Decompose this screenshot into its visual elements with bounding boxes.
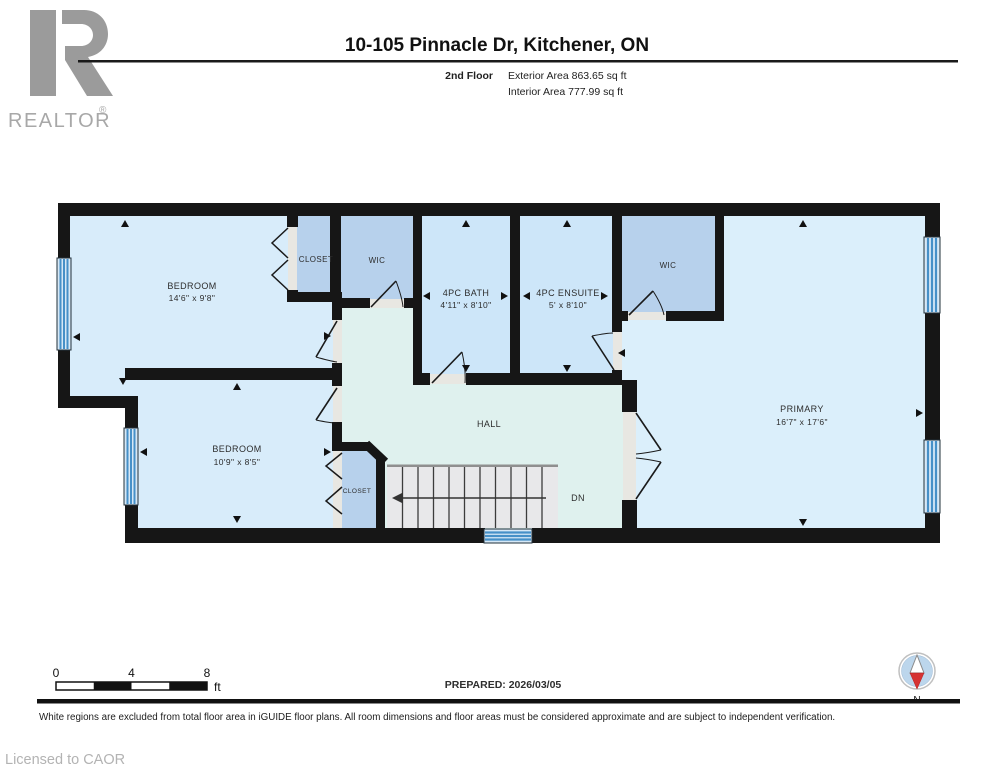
hall-label: HALL bbox=[477, 419, 501, 429]
floorplan-page: REALTOR ® 10-105 Pinnacle Dr, Kitchener,… bbox=[0, 0, 995, 768]
logo-brand-text: REALTOR bbox=[8, 110, 111, 132]
bedroom-2-dims: 10'9" x 8'5" bbox=[214, 457, 261, 467]
bedroom-1-label: BEDROOM bbox=[167, 281, 216, 291]
floor-plan: BEDROOM 14'6" x 9'8" CLOSET WIC 4PC BATH… bbox=[57, 203, 940, 543]
bedroom-2-label: BEDROOM bbox=[212, 444, 261, 454]
disclaimer-text: White regions are excluded from total fl… bbox=[39, 712, 835, 723]
prepared-date: PREPARED: 2026/03/05 bbox=[445, 679, 562, 691]
logo-r-bowl-leg bbox=[62, 10, 113, 96]
compass-icon: N bbox=[899, 653, 935, 706]
realtor-logo: REALTOR ® bbox=[8, 10, 113, 132]
scale-bar: 0 4 8 ft bbox=[53, 666, 222, 694]
header-divider-line bbox=[78, 60, 958, 63]
window bbox=[484, 529, 532, 543]
logo-r-stem bbox=[30, 10, 56, 96]
primary-dims: 16'7" x 17'6" bbox=[776, 417, 828, 427]
window bbox=[924, 237, 940, 313]
scale-unit-label: ft bbox=[214, 680, 221, 694]
floor-label: 2nd Floor bbox=[445, 70, 493, 82]
interior-area-text: Interior Area 777.99 sq ft bbox=[508, 86, 623, 98]
footer-divider-line bbox=[37, 699, 960, 704]
bath-label: 4PC BATH bbox=[443, 288, 490, 298]
bedroom-1-dims: 14'6" x 9'8" bbox=[169, 293, 216, 303]
window bbox=[57, 258, 71, 350]
closet-2-label: CLOSET bbox=[343, 488, 371, 495]
wic-1-label: WIC bbox=[369, 256, 386, 265]
page-title: 10-105 Pinnacle Dr, Kitchener, ON bbox=[345, 35, 649, 56]
window bbox=[924, 440, 940, 513]
closet-1-label: CLOSET bbox=[299, 255, 333, 264]
stairs-dn-label: DN bbox=[571, 493, 585, 503]
wic-2-label: WIC bbox=[660, 261, 677, 270]
staircase bbox=[387, 465, 558, 529]
scale-tick-4: 4 bbox=[128, 666, 135, 680]
primary-label: PRIMARY bbox=[780, 404, 824, 414]
window bbox=[124, 428, 138, 505]
ensuite-dims: 5' x 8'10" bbox=[549, 300, 587, 310]
license-text: Licensed to CAOR bbox=[5, 752, 125, 768]
ensuite-label: 4PC ENSUITE bbox=[536, 288, 599, 298]
scale-tick-0: 0 bbox=[53, 666, 60, 680]
registered-mark-icon: ® bbox=[99, 105, 107, 116]
bath-dims: 4'11" x 8'10" bbox=[440, 300, 491, 310]
exterior-area-text: Exterior Area 863.65 sq ft bbox=[508, 70, 627, 82]
scale-tick-8: 8 bbox=[204, 666, 211, 680]
room-bedroom-2-floor bbox=[136, 380, 334, 530]
floorplan-canvas: REALTOR ® 10-105 Pinnacle Dr, Kitchener,… bbox=[0, 0, 995, 768]
